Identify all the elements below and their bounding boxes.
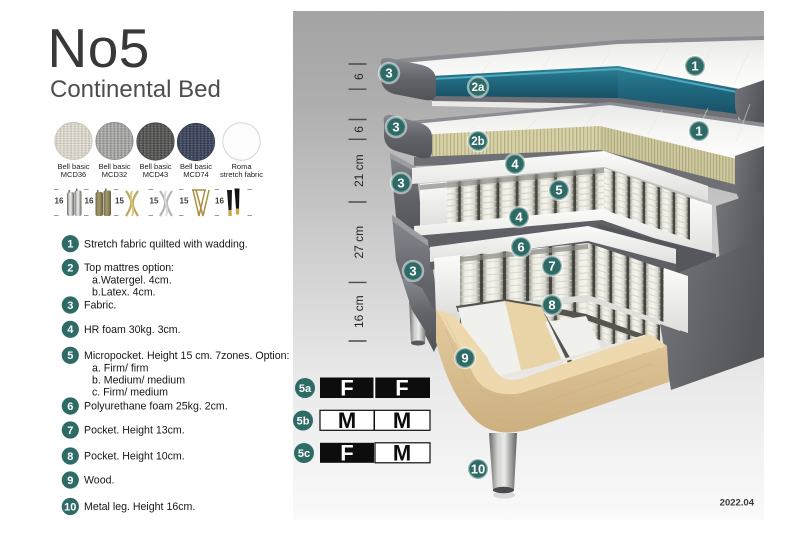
svg-text:Fabric.: Fabric. [84,300,116,312]
svg-text:M: M [393,408,411,433]
svg-text:MCD36: MCD36 [61,170,86,179]
svg-text:HR foam 30kg. 3cm.: HR foam 30kg. 3cm. [84,324,181,336]
svg-text:7: 7 [548,259,555,274]
svg-text:No5: No5 [48,17,150,79]
svg-text:16: 16 [85,197,94,206]
svg-text:9: 9 [67,475,73,487]
svg-text:15: 15 [115,197,124,206]
svg-text:7: 7 [67,425,73,437]
svg-text:15: 15 [150,197,159,206]
svg-text:10: 10 [64,501,76,513]
svg-text:6: 6 [352,126,366,133]
svg-text:4: 4 [511,157,519,172]
svg-text:Micropocket. Height 15 cm. 7zo: Micropocket. Height 15 cm. 7zones. Optio… [84,350,290,362]
svg-text:1: 1 [67,239,73,251]
svg-text:5c: 5c [298,448,310,460]
svg-text:9: 9 [461,351,468,366]
svg-text:F: F [340,441,353,466]
svg-text:M: M [393,441,411,466]
svg-text:4: 4 [67,324,74,336]
svg-text:5b: 5b [297,416,310,428]
svg-text:Top mattres option:: Top mattres option: [84,262,174,274]
svg-text:3: 3 [409,264,416,279]
svg-text:2: 2 [67,262,73,274]
svg-text:16 cm: 16 cm [352,295,366,328]
svg-text:F: F [340,376,353,401]
svg-text:5: 5 [555,183,562,198]
svg-text:a.Watergel. 4cm.: a.Watergel. 4cm. [92,274,172,286]
svg-text:3: 3 [385,66,392,81]
svg-text:2b: 2b [471,136,484,148]
svg-text:3: 3 [67,300,73,312]
svg-text:b. Medium/ medium: b. Medium/ medium [92,375,185,387]
svg-text:MCD32: MCD32 [102,170,127,179]
svg-text:6: 6 [67,401,73,413]
svg-text:16: 16 [55,197,64,206]
svg-text:M: M [338,408,356,433]
svg-text:5: 5 [67,350,73,362]
svg-text:2a: 2a [472,82,485,94]
svg-text:Wood.: Wood. [84,475,114,487]
svg-text:stretch fabric: stretch fabric [220,170,263,179]
svg-text:1: 1 [695,124,702,139]
svg-text:Polyurethane foam 25kg. 2cm.: Polyurethane foam 25kg. 2cm. [84,401,228,413]
svg-text:8: 8 [548,298,555,313]
svg-text:1: 1 [691,59,698,74]
svg-text:27 cm: 27 cm [352,226,366,259]
svg-text:16: 16 [215,197,224,206]
svg-text:15: 15 [180,197,189,206]
svg-text:MCD43: MCD43 [143,170,168,179]
svg-text:8: 8 [67,451,73,463]
svg-text:4: 4 [515,210,523,225]
svg-text:6: 6 [352,73,366,80]
svg-text:MCD74: MCD74 [183,170,208,179]
svg-text:Continental Bed: Continental Bed [50,76,221,103]
svg-text:Stretch fabric quilted with wa: Stretch fabric quilted with wadding. [84,238,248,250]
svg-text:3: 3 [397,176,404,191]
svg-text:3: 3 [392,120,399,135]
svg-text:Metal leg. Height 16cm.: Metal leg. Height 16cm. [84,501,195,513]
svg-text:F: F [395,376,408,401]
svg-text:c. Firm/ medium: c. Firm/ medium [92,387,168,399]
svg-text:b.Latex. 4cm.: b.Latex. 4cm. [92,286,156,298]
svg-text:10: 10 [471,462,485,477]
svg-text:6: 6 [517,240,524,255]
svg-text:5a: 5a [299,383,312,395]
svg-text:2022.04: 2022.04 [720,498,755,509]
svg-text:Pocket. Height 13cm.: Pocket. Height 13cm. [84,425,185,437]
svg-text:a. Firm/ firm: a. Firm/ firm [92,363,149,375]
svg-text:21 cm: 21 cm [352,154,366,187]
svg-text:Pocket. Height 10cm.: Pocket. Height 10cm. [84,451,185,463]
